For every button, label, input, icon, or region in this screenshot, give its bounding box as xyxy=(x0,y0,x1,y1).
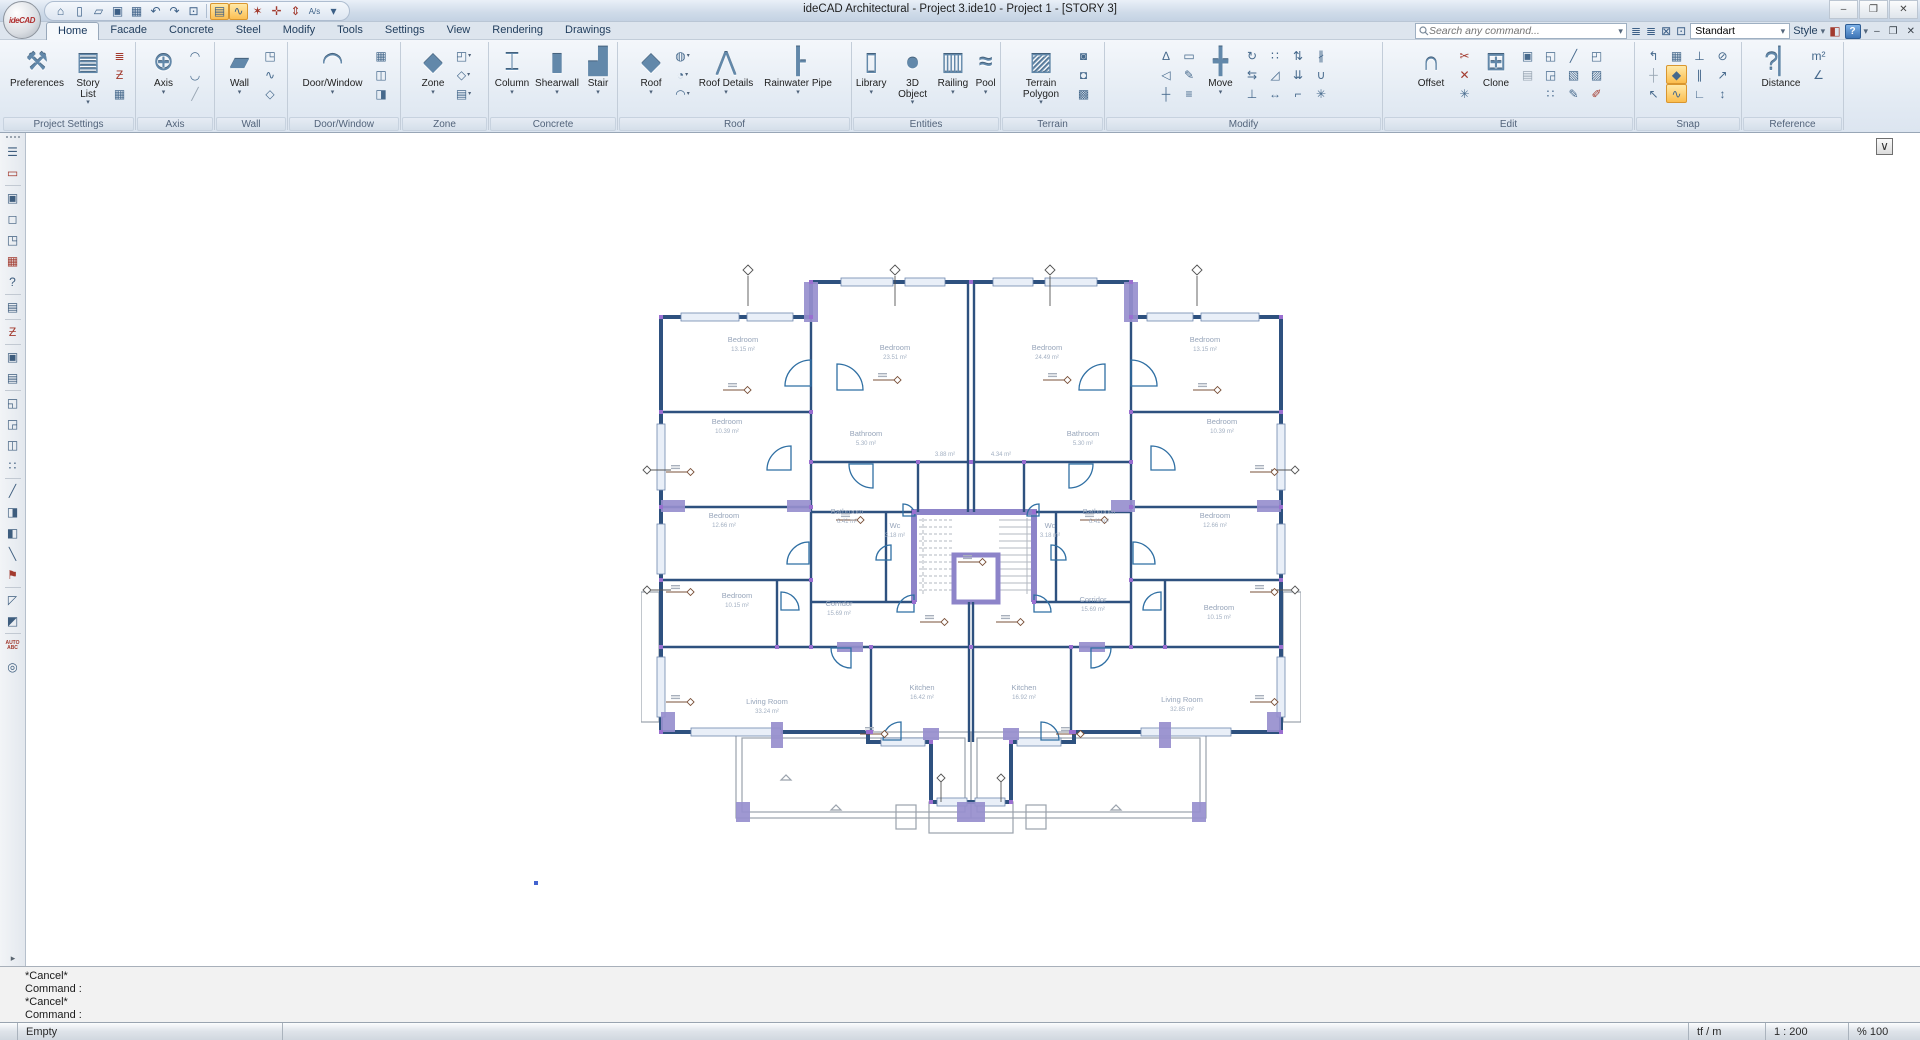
snap-axis-icon[interactable]: ┼ xyxy=(1643,65,1664,84)
terrace-outlines xyxy=(641,592,1301,833)
group-label: Wall xyxy=(216,117,286,131)
dropdown-arrow-icon: ▾ xyxy=(238,90,242,96)
clone-button[interactable]: ⊞Clone xyxy=(1476,42,1516,117)
doc-close-icon[interactable]: ✕ xyxy=(1904,26,1918,37)
button-label: Offset xyxy=(1418,79,1445,90)
shearwall-icon: ▮ xyxy=(550,45,564,79)
group-label: Door/Window xyxy=(289,117,399,131)
extend-point-icon[interactable]: ✳ xyxy=(1454,84,1475,103)
room-label: Bedroom xyxy=(722,591,752,600)
command-search[interactable]: ▾ xyxy=(1415,23,1627,39)
wall-poly-icon[interactable]: ∿ xyxy=(260,65,281,84)
style-combo[interactable]: Standart ▾ xyxy=(1690,23,1790,39)
distance-icon: ?▏ xyxy=(1764,45,1797,79)
room-label: Bedroom xyxy=(1032,343,1062,352)
sheet-icon[interactable]: ▤ xyxy=(3,297,23,317)
button-label: Zone xyxy=(422,79,445,90)
library-button[interactable]: ▯Library▾ xyxy=(852,42,890,117)
tab-steel[interactable]: Steel xyxy=(225,22,272,40)
properties-panel-icon[interactable]: ☰ xyxy=(3,142,23,162)
slab-icon[interactable]: ◧ xyxy=(3,523,23,543)
toolbar-separator xyxy=(5,344,21,345)
roof-button[interactable]: ◆Roof▾ xyxy=(631,42,671,117)
status-scale[interactable]: 1 : 200 xyxy=(1766,1023,1849,1040)
ribbon-tabs: HomeFacadeConcreteSteelModifyToolsSettin… xyxy=(46,22,622,40)
button-label: Wall xyxy=(230,79,249,90)
terrain-green-icon[interactable]: ▩ xyxy=(1073,84,1094,103)
room-area-label: 23.51 m² xyxy=(883,355,907,361)
library-icon: ▯ xyxy=(864,45,878,79)
rainwater-pipe-button[interactable]: ┠Rainwater Pipe▾ xyxy=(758,42,838,117)
group-label: Project Settings xyxy=(3,117,134,131)
pattern-icon[interactable]: ▨ xyxy=(1586,65,1607,84)
move-icon: ╋ xyxy=(1213,45,1228,79)
room-area-label: 15.69 m² xyxy=(827,611,851,617)
button-label: Distance xyxy=(1762,79,1801,90)
toolbar-grip[interactable] xyxy=(0,133,25,141)
button-label: Preferences xyxy=(10,79,64,90)
story-stack-icon[interactable]: ≣ xyxy=(109,46,130,65)
window-grid-icon[interactable]: ▦ xyxy=(371,46,392,65)
room-area-label: 16.92 m² xyxy=(1012,695,1036,701)
scale-icon[interactable]: ◿ xyxy=(1265,65,1286,84)
picker-icon[interactable]: ✎ xyxy=(1179,65,1200,84)
button-label: Column xyxy=(495,79,529,90)
node-edit-icon[interactable]: ◻ xyxy=(3,209,23,229)
toolbar-expand-icon[interactable]: ▸ xyxy=(0,953,26,964)
tab-home[interactable]: Home xyxy=(46,22,99,40)
ungroup-icon[interactable]: ◲ xyxy=(1540,65,1561,84)
room-area-label: 15.69 m² xyxy=(1081,607,1105,613)
object-3d-icon: ● xyxy=(905,45,920,79)
move-button[interactable]: ╋Move▾ xyxy=(1201,42,1241,117)
mirror-window-icon[interactable]: ◫ xyxy=(3,435,23,455)
array-icon[interactable]: ∷ xyxy=(1265,46,1286,65)
copy-icon[interactable]: ▣ xyxy=(3,347,23,367)
room-label: Bathroom xyxy=(850,429,883,438)
table-select-icon[interactable]: ▦ xyxy=(3,251,23,271)
group-label: Roof xyxy=(619,117,850,131)
axis-button[interactable]: ⊕Axis▾ xyxy=(144,42,184,117)
close-button[interactable]: ✕ xyxy=(1889,0,1918,19)
auto-label-icon[interactable]: AUTO ABC xyxy=(3,636,23,656)
room-label: Living Room xyxy=(1161,695,1203,704)
search-icon xyxy=(1419,26,1429,36)
help-dropdown-icon[interactable]: ▾ xyxy=(1864,26,1869,37)
toolbar-separator xyxy=(5,478,21,479)
room-area-label: 3.18 m² xyxy=(885,533,905,539)
tab-rendering[interactable]: Rendering xyxy=(481,22,554,40)
erase-icon[interactable]: ✐ xyxy=(1586,84,1607,103)
rotate-icon[interactable]: ↻ xyxy=(1242,46,1263,65)
arc-axis2-icon[interactable]: ◡ xyxy=(185,65,206,84)
snap-vertical-icon[interactable]: ↕ xyxy=(1712,84,1733,103)
room-area-label: 12.66 m² xyxy=(1203,523,1227,529)
snap-turn-icon[interactable]: ↰ xyxy=(1643,46,1664,65)
line-diagonal-icon[interactable]: ╲ xyxy=(3,544,23,564)
room-label: Corridor xyxy=(1079,595,1107,604)
small-button-column: ∆◁┼ xyxy=(1156,42,1177,117)
dome-icon[interactable]: ◍▾ xyxy=(672,46,693,65)
tab-facade[interactable]: Facade xyxy=(99,22,158,40)
roof-icon: ◆ xyxy=(641,45,660,79)
button-label: Roof Details xyxy=(699,79,753,90)
group-icon[interactable]: ◱ xyxy=(1540,46,1561,65)
terrain-polygon-icon: ▨ xyxy=(1029,45,1053,79)
copy-icon[interactable]: ▣ xyxy=(1517,46,1538,65)
small-button-column: ≣Ƶ▦ xyxy=(109,42,130,117)
dropdown-arrow-icon: ▾ xyxy=(796,90,800,96)
status-selection: Empty xyxy=(18,1023,283,1040)
wall-gem-icon[interactable]: ◇ xyxy=(260,84,281,103)
room-area-label: 3.18 m² xyxy=(1040,533,1060,539)
wall-corner-icon[interactable]: ◳ xyxy=(260,46,281,65)
terrain-polygon-button[interactable]: ▨Terrain Polygon▾ xyxy=(1010,42,1072,117)
room-area-label: 5.30 m² xyxy=(1073,441,1093,447)
style-dropdown-icon[interactable]: ▾ xyxy=(1821,26,1826,37)
tab-concrete[interactable]: Concrete xyxy=(158,22,225,40)
dropdown-arrow-icon: ▾ xyxy=(467,71,470,78)
room-area-label: 4.34 m² xyxy=(991,452,1011,458)
trim-icon[interactable]: ╱ xyxy=(1563,46,1584,65)
small-button-column: ⊥∥∟ xyxy=(1689,42,1710,117)
snap-corner-icon[interactable]: ∟ xyxy=(1689,84,1710,103)
style-label[interactable]: Style xyxy=(1793,25,1817,37)
group-label: Entities xyxy=(853,117,999,131)
wall-button[interactable]: ▰Wall▾ xyxy=(221,42,259,117)
story-list-icon: ▤ xyxy=(76,45,100,79)
button-label: Roof xyxy=(640,79,661,90)
logo-text: ideCAD xyxy=(9,16,35,25)
snap-angle-icon[interactable]: ∆ xyxy=(1156,46,1177,65)
edit-node-icon[interactable]: ✎ xyxy=(1563,84,1584,103)
search-dropdown-icon[interactable]: ▾ xyxy=(1618,26,1623,37)
button-label: Story List xyxy=(68,79,108,100)
wall-icon: ▰ xyxy=(230,45,249,79)
group-label: Axis xyxy=(137,117,213,131)
note-edit-icon[interactable]: ≡ xyxy=(1179,84,1200,103)
select-add-icon[interactable]: ▣ xyxy=(3,188,23,208)
offset-icon: ∩ xyxy=(1422,45,1440,79)
angle-ref-icon[interactable]: ◁ xyxy=(1156,65,1177,84)
small-button-column: ◱◲∷ xyxy=(1540,42,1561,117)
distance-button[interactable]: ?▏Distance xyxy=(1755,42,1807,117)
room-area-label: 6.41 m² xyxy=(1089,519,1109,525)
clone-object-icon[interactable]: ◲ xyxy=(3,414,23,434)
dropdown-arrow-icon: ▾ xyxy=(596,90,600,96)
terrain-cut-icon[interactable]: ◘ xyxy=(1073,65,1094,84)
zone-stack-icon[interactable]: ▤▾ xyxy=(453,84,474,103)
tab-settings[interactable]: Settings xyxy=(374,22,436,40)
small-button-column: ↻⇆⊥ xyxy=(1242,42,1263,117)
small-button-column: ▦◆∿ xyxy=(1666,42,1687,117)
tab-drawings[interactable]: Drawings xyxy=(554,22,622,40)
report-icon[interactable]: ▦ xyxy=(109,84,130,103)
select-entity-icon[interactable]: ▭ xyxy=(3,163,23,183)
small-button-column: ◳∿◇ xyxy=(260,42,281,117)
ribbon-group-entities: ▯Library▾●3D Object▾▥Railing▾≈Pool▾Entit… xyxy=(852,40,1000,132)
help-button[interactable]: ? xyxy=(1845,24,1861,39)
ribbon-group-axis: ⊕Axis▾◠◡╱Axis xyxy=(136,40,214,132)
flag-icon[interactable]: ⚑ xyxy=(3,565,23,585)
tab-view[interactable]: View xyxy=(436,22,482,40)
doc-minimize-icon[interactable]: – xyxy=(1871,26,1883,37)
room-label: Bedroom xyxy=(1207,417,1237,426)
axis-move-icon[interactable]: ┼ xyxy=(1156,84,1177,103)
axis-markers xyxy=(643,265,1299,802)
idecad-logo[interactable]: ideCAD xyxy=(3,1,41,39)
drawing-canvas[interactable]: ∨ xyxy=(27,133,1920,966)
arc-axis-icon[interactable]: ◠ xyxy=(185,46,206,65)
story-section-icon[interactable]: Ƶ xyxy=(3,322,23,342)
merge-icon[interactable]: ∪ xyxy=(1311,65,1332,84)
shearwall-button[interactable]: ▮Shearwall▾ xyxy=(533,42,581,117)
room-area-label: 6.41 m² xyxy=(837,519,857,525)
awning-icon[interactable]: ◠▾ xyxy=(672,84,693,103)
clone-icon: ⊞ xyxy=(1486,45,1507,79)
command-line: Command : xyxy=(25,983,1920,996)
stair-button[interactable]: ▟Stair▾ xyxy=(581,42,615,117)
room-label: Bedroom xyxy=(1190,335,1220,344)
divide-icon[interactable]: ∦ xyxy=(1311,46,1332,65)
terrain-fill-icon[interactable]: ◙ xyxy=(1073,46,1094,65)
measure-edit-icon[interactable]: ▭ xyxy=(1179,46,1200,65)
offset-button[interactable]: ∩Offset xyxy=(1409,42,1453,117)
array2-icon[interactable]: ∷ xyxy=(1540,84,1561,103)
find-icon[interactable]: ◎ xyxy=(3,657,23,677)
window-pane-icon[interactable]: ◫ xyxy=(371,65,392,84)
small-button-column: ▣▤ xyxy=(1517,42,1538,117)
hatch-icon[interactable]: ▧ xyxy=(1563,65,1584,84)
ribbon-group-roof: ◆Roof▾◍▾◔▾◠▾⋀Roof Details▾┠Rainwater Pip… xyxy=(618,40,851,132)
small-button-column: ∷◿↔ xyxy=(1265,42,1286,117)
command-line: Command : xyxy=(25,1009,1920,1022)
small-button-column: ▦◫◨ xyxy=(371,42,392,117)
preferences-icon: ⚒ xyxy=(26,45,48,79)
ribbon-group-snap: ↰┼↖▦◆∿⊥∥∟⊘↗↕Snap xyxy=(1635,40,1741,132)
align-bottom-icon[interactable]: ⊥ xyxy=(1242,84,1263,103)
dropdown-arrow-icon: ▾ xyxy=(86,100,90,106)
dropdown-arrow-icon: ▾ xyxy=(685,71,688,78)
region-icon[interactable]: ◰ xyxy=(1586,46,1607,65)
snap-node-icon[interactable]: ◆ xyxy=(1666,65,1687,84)
style-combo-arrow-icon: ▾ xyxy=(1781,26,1786,37)
door-window-button[interactable]: ◠Door/Window▾ xyxy=(296,42,370,117)
snap-poly-icon[interactable]: ∿ xyxy=(1666,84,1687,103)
story-list-button[interactable]: ▤Story List▾ xyxy=(68,42,108,117)
toolbar-separator xyxy=(5,319,21,320)
roof-details-icon: ⋀ xyxy=(716,45,737,79)
render-settings-icon[interactable]: ◧ xyxy=(1828,24,1841,38)
window-3d-icon[interactable]: ◨ xyxy=(371,84,392,103)
stair-icon: ▟ xyxy=(588,45,607,79)
room-label: Bathroom xyxy=(831,507,864,516)
status-bar: Empty tf / m 1 : 200 % 100 xyxy=(0,1022,1920,1040)
angle-icon[interactable]: ∠ xyxy=(1808,65,1829,84)
group-label: Terrain xyxy=(1002,117,1103,131)
roof-details-button[interactable]: ⋀Roof Details▾ xyxy=(694,42,758,117)
dropdown-arrow-icon: ▾ xyxy=(468,52,471,59)
button-label: Railing xyxy=(938,79,969,90)
dropdown-arrow-icon: ▾ xyxy=(687,90,690,97)
button-label: Door/Window xyxy=(302,79,362,90)
query-info-icon[interactable]: ? xyxy=(3,272,23,292)
room-label: Bedroom xyxy=(1204,603,1234,612)
minimize-button[interactable]: – xyxy=(1829,0,1858,19)
status-corner xyxy=(0,1023,18,1040)
railing-button[interactable]: ▥Railing▾ xyxy=(935,42,972,117)
button-label: Terrain Polygon xyxy=(1010,79,1072,100)
main-area: ☰▭▣◻◳▦?▤Ƶ▣▤◱◲◫∷╱◨◧╲⚑◸◩AUTO ABC◎ ▸ ∨ xyxy=(0,133,1920,966)
room-area-label: 32.85 m² xyxy=(1170,707,1194,713)
room-label: Kitchen xyxy=(1011,683,1036,692)
xref-toggle-icon[interactable]: ⊠ xyxy=(1660,24,1672,38)
project-icon[interactable]: ⌐ xyxy=(1288,84,1309,103)
snap-perp2-icon[interactable]: ⊥ xyxy=(1689,46,1710,65)
layer-manager-icon[interactable]: ≣ xyxy=(1630,24,1642,38)
small-button-column: ↰┼↖ xyxy=(1643,42,1664,117)
left-toolbar: ☰▭▣◻◳▦?▤Ƶ▣▤◱◲◫∷╱◨◧╲⚑◸◩AUTO ABC◎ ▸ xyxy=(0,133,26,966)
snap-point-icon[interactable]: ↗ xyxy=(1712,65,1733,84)
explode-icon[interactable]: ✳ xyxy=(1311,84,1332,103)
snap-cursor-icon[interactable]: ↖ xyxy=(1643,84,1664,103)
snap-grid-icon[interactable]: ▦ xyxy=(1666,46,1687,65)
group-label: Zone xyxy=(402,117,487,131)
doc-restore-icon[interactable]: ❐ xyxy=(1886,26,1901,37)
room-label: Bedroom xyxy=(728,335,758,344)
dropdown-arrow-icon: ▾ xyxy=(331,90,335,96)
story-section-icon[interactable]: Ƶ xyxy=(109,65,130,84)
ribbon-group-modify: ∆◁┼▭✎≡╋Move▾↻⇆⊥∷◿↔⇅⇊⌐∦∪✳Modify xyxy=(1105,40,1382,132)
ribbon-tab-row: HomeFacadeConcreteSteelModifyToolsSettin… xyxy=(0,22,1920,40)
room-area-label: 10.15 m² xyxy=(1207,615,1231,621)
floor-plan[interactable]: Bedroom13.15 m²Bedroom23.51 m²Bedroom24.… xyxy=(641,262,1301,837)
node-clone-icon[interactable]: ◳ xyxy=(3,230,23,250)
raise-icon[interactable]: ⇅ xyxy=(1288,46,1309,65)
ribbon-group-wall: ▰Wall▾◳∿◇Wall xyxy=(215,40,287,132)
small-button-column: ◰▨✐ xyxy=(1586,42,1607,117)
group-label: Reference xyxy=(1743,117,1842,131)
zone-icon: ◆ xyxy=(423,45,442,79)
lower-icon[interactable]: ⇊ xyxy=(1288,65,1309,84)
stretch-icon[interactable]: ↔ xyxy=(1265,84,1286,103)
dropdown-arrow-icon: ▾ xyxy=(649,90,653,96)
preferences-button[interactable]: ⚒Preferences xyxy=(6,42,68,117)
room-label: Bathroom xyxy=(1067,429,1100,438)
roof-window-icon[interactable]: ◔▾ xyxy=(672,65,693,84)
ribbon-group-concrete: ⌶Column▾▮Shearwall▾▟Stair▾Concrete xyxy=(489,40,617,132)
confirm-button[interactable]: ∨ xyxy=(1876,138,1893,155)
tab-modify[interactable]: Modify xyxy=(272,22,326,40)
ribbon-group-reference: ?▏Distancem²∠Reference xyxy=(1742,40,1843,132)
node-squares xyxy=(659,280,1283,804)
3d-object-button[interactable]: ●3D Object▾ xyxy=(890,42,934,117)
paste-icon[interactable]: ▤ xyxy=(3,368,23,388)
diagonal-axis-icon[interactable]: ╱ xyxy=(185,84,206,103)
zone-button[interactable]: ◆Zone▾ xyxy=(414,42,452,117)
layer-list-icon[interactable]: ≣ xyxy=(1645,24,1657,38)
button-label: Axis xyxy=(154,79,173,90)
status-zoom[interactable]: % 100 xyxy=(1849,1023,1920,1040)
array-dots-icon[interactable]: ∷ xyxy=(3,456,23,476)
dropdown-arrow-icon: ▾ xyxy=(687,52,690,59)
dropdown-arrow-icon: ▾ xyxy=(869,90,873,96)
status-units[interactable]: tf / m xyxy=(1689,1023,1766,1040)
door-elevation-icon[interactable]: ◨ xyxy=(3,502,23,522)
group-separator xyxy=(1843,42,1844,130)
maximize-button[interactable]: ❐ xyxy=(1859,0,1888,19)
room-area-label: 33.24 m² xyxy=(755,709,779,715)
ribbon: ⚒Preferences▤Story List▾≣Ƶ▦Project Setti… xyxy=(0,40,1920,133)
paint-icon[interactable]: ◩ xyxy=(3,611,23,631)
ribbon-group-zone: ◆Zone▾◰▾◇▾▤▾Zone xyxy=(401,40,488,132)
room-label: Living Room xyxy=(746,697,788,706)
search-input[interactable] xyxy=(1429,25,1618,37)
walls xyxy=(661,282,1281,802)
button-label: Move xyxy=(1208,79,1232,90)
dropdown-arrow-icon: ▾ xyxy=(724,90,728,96)
snap-parallel-icon[interactable]: ∥ xyxy=(1689,65,1710,84)
toolbar-separator xyxy=(5,185,21,186)
intersect-icon[interactable]: ✕ xyxy=(1454,65,1475,84)
snap-circle-icon[interactable]: ⊘ xyxy=(1712,46,1733,65)
stray-node-dot xyxy=(534,881,538,885)
button-label: Library xyxy=(856,79,887,90)
room-label: Bedroom xyxy=(1200,511,1230,520)
small-button-column: ▭✎≡ xyxy=(1179,42,1200,117)
room-area-label: 13.15 m² xyxy=(1193,347,1217,353)
windows xyxy=(657,278,1285,806)
ribbon-group-edit: ∩Offset✂✕✳⊞Clone▣▤◱◲∷╱▧✎◰▨✐Edit xyxy=(1383,40,1634,132)
door-style-icon[interactable]: ⊡ xyxy=(1675,24,1687,38)
room-label: Bedroom xyxy=(709,511,739,520)
tab-tools[interactable]: Tools xyxy=(326,22,374,40)
dropdown-arrow-icon: ▾ xyxy=(1219,90,1223,96)
command-line: *Cancel* xyxy=(25,996,1920,1009)
title-bar: ideCAD ⌂▯▱▣▦↶↷⊡▤∿✶✛⇕A/s▾ ideCAD Architec… xyxy=(0,0,1920,22)
staircase xyxy=(914,512,1034,602)
command-panel[interactable]: *Cancel*Command :*Cancel*Command : xyxy=(0,966,1920,1022)
zone-l-icon[interactable]: ◰▾ xyxy=(453,46,474,65)
small-button-column: ◍▾◔▾◠▾ xyxy=(672,42,693,117)
button-label: Pool xyxy=(976,79,996,90)
room-area-label: 10.15 m² xyxy=(725,603,749,609)
room-area-label: 10.39 m² xyxy=(715,429,739,435)
zone-gem-icon[interactable]: ◇▾ xyxy=(453,65,474,84)
break-icon[interactable]: ✂ xyxy=(1454,46,1475,65)
button-label: 3D Object xyxy=(890,79,934,100)
dropdown-arrow-icon: ▾ xyxy=(555,90,559,96)
area-m2-icon[interactable]: m² xyxy=(1808,46,1829,65)
trim-slash-icon[interactable]: ╱ xyxy=(3,481,23,501)
room-label: Wc xyxy=(890,521,901,530)
group-label: Concrete xyxy=(490,117,616,131)
group-label: Snap xyxy=(1636,117,1740,131)
group-label: Modify xyxy=(1106,117,1381,131)
toolbar-separator xyxy=(5,390,21,391)
pool-button[interactable]: ≈Pool▾ xyxy=(971,42,1000,117)
room-area-label: 16.42 m² xyxy=(910,695,934,701)
column-button[interactable]: ⌶Column▾ xyxy=(491,42,533,117)
mirror-icon[interactable]: ⇆ xyxy=(1242,65,1263,84)
corner-select-icon[interactable]: ◸ xyxy=(3,590,23,610)
column-icon: ⌶ xyxy=(504,45,519,79)
button-label: Stair xyxy=(588,79,609,90)
move-object-icon[interactable]: ◱ xyxy=(3,393,23,413)
toolbar-separator xyxy=(5,294,21,295)
door-arcs xyxy=(767,360,1175,740)
paste-icon[interactable]: ▤ xyxy=(1517,65,1538,84)
